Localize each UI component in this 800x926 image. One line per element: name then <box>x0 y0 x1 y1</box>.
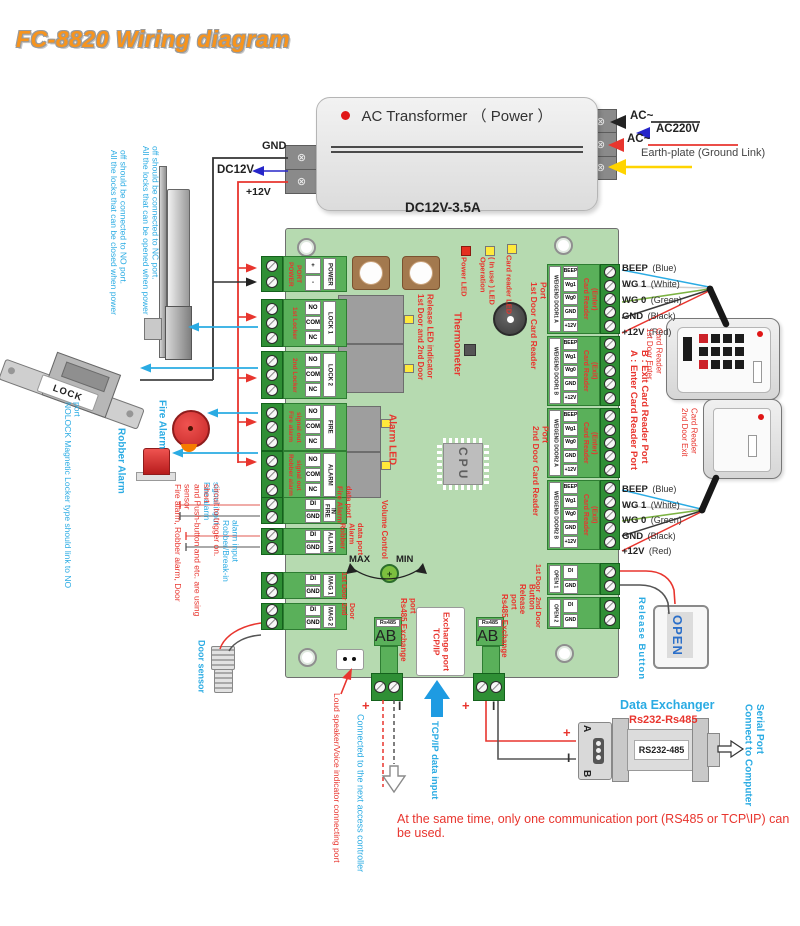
operation-led <box>485 246 495 256</box>
pin-label: GND <box>563 614 578 628</box>
wiring-diagram: FC-8820 Wiring diagram <box>0 0 800 926</box>
pin-label: COM <box>305 316 321 330</box>
card-reader-keypad <box>666 318 780 400</box>
pin-label: GND <box>305 542 321 554</box>
tcpip-port-label: TCP/IP Exchange port <box>431 612 451 671</box>
pin-label: DI <box>305 530 321 542</box>
rs485-port-label-left: Rs485 Exchange port <box>399 598 417 672</box>
relay-lock2 <box>338 344 404 393</box>
pin-label: NC <box>305 483 321 497</box>
exchanger-device-label: RS232-485 <box>634 740 689 760</box>
ac-transformer: AC Transformer （ Power ） <box>316 97 598 211</box>
pin-label: +12V <box>563 392 578 405</box>
pin-label: Wg1 <box>563 423 578 436</box>
pin-label: Wg0 <box>563 509 578 522</box>
exchanger-title: Data Exchanger <box>620 698 714 712</box>
rs485-block-left: Rs485 AB <box>374 617 402 646</box>
terminal-mag2: DIGND MAG 2 <box>261 603 347 630</box>
door-sensor-device <box>211 646 235 670</box>
terminal-open1: OPEN 1 DIGND <box>547 563 620 595</box>
note-one-port: At the same time, only one communication… <box>397 812 800 841</box>
power-led <box>461 246 471 256</box>
dc12v-label: DC12V <box>217 164 254 177</box>
terminal-open2: OPEN 2 DIGND <box>547 597 620 629</box>
legend-color: (Blue) <box>652 263 676 273</box>
mounting-hole <box>298 648 317 667</box>
gnd-label: GND <box>262 140 286 153</box>
pin-label: COM <box>305 368 321 382</box>
transformer-divider <box>331 146 583 153</box>
pin-label: NO <box>305 405 321 419</box>
note-loud-speaker: Loud speaker/Voice indicator connecting … <box>331 693 341 865</box>
terminal-fire-out: Fire alarm signal out NOCOMNC FIRE <box>261 403 347 451</box>
pin-label: BEEP <box>563 410 578 423</box>
reader2-device-label: 2nd Door Exit Card Reader <box>680 408 698 476</box>
pin-label: DI <box>563 599 578 613</box>
pin-label: DI <box>563 565 578 579</box>
open-button: OPEN <box>653 605 709 669</box>
screw-terminal-icon: ⊗ <box>286 146 317 170</box>
pin-label: + <box>305 258 321 274</box>
exchanger-a-label: A <box>581 725 592 732</box>
pin-label: GND <box>305 617 321 629</box>
pin-label: GND <box>305 586 321 598</box>
rs485-pins: AB <box>375 628 401 646</box>
note-next-controller: Connected to the next access controller <box>355 714 365 894</box>
cpu-label: CPU <box>456 447 470 481</box>
release-button-label: Release Button <box>635 597 646 685</box>
relay-lock1 <box>338 295 404 344</box>
pin-label: Wg1 <box>563 495 578 508</box>
rs485-stem-left <box>380 646 398 674</box>
pin-label: BEEP <box>563 338 578 351</box>
fire-alarm-bell <box>172 410 210 448</box>
exchanger-bar: I <box>567 752 570 766</box>
mounting-hole <box>297 238 316 257</box>
note-nc-port: All the locks that can be opened when po… <box>140 146 160 324</box>
card-reader-led <box>507 244 517 254</box>
pin-label: NC <box>305 331 321 345</box>
pin-label: B <box>488 628 499 646</box>
pin-label: GND <box>563 450 578 463</box>
exchanger-body: RS232-485 <box>627 729 694 771</box>
pin-label: NO <box>305 453 321 467</box>
pin-label: - <box>305 275 321 291</box>
terminal-lock2: 2nd Locker NOCOMNC LOCK 2 <box>261 351 347 399</box>
mounting-hole <box>554 236 573 255</box>
thermometer-component <box>464 344 476 356</box>
cpu-chip: CPU <box>437 438 489 490</box>
pin-label: +12V <box>563 536 578 549</box>
fire-alarm-label: Fire Alarm <box>156 400 168 454</box>
alarm-led-label: Alarm LED <box>386 414 398 494</box>
pin-label: A <box>477 628 488 646</box>
mag1-door-label: 1st Door <box>339 572 347 602</box>
mounting-hole <box>555 644 574 663</box>
right-port-bar: I <box>492 700 495 714</box>
ac-in-label-1: AC~ <box>630 110 653 123</box>
volume-knob: + <box>380 564 399 583</box>
open-button-label: OPEN <box>670 615 685 657</box>
pin-label: DI <box>305 499 321 511</box>
exchanger-plus: + <box>563 726 571 741</box>
fire-alarm-base <box>181 444 197 452</box>
volume-control-label: Volume Control <box>380 500 389 566</box>
power-led-label: Power LED <box>459 257 468 319</box>
rs485-header: Rs485 <box>376 619 400 627</box>
note-nolock: NOLOCK Magnetic Locker type should link … <box>62 402 82 592</box>
door1-release-led <box>404 315 414 324</box>
exchanger-input-block: A B <box>578 722 612 780</box>
note-tcpip-input: TCP/IP data input <box>428 721 439 809</box>
ac220-label: AC220V <box>656 123 699 136</box>
card-reader-plain <box>703 399 782 479</box>
pin-label: A <box>375 628 386 646</box>
sounder-component <box>402 256 440 290</box>
pin-label: NO <box>305 301 321 315</box>
pin-label: Wg1 <box>563 351 578 364</box>
terminal-lock1: 1st Locker NOCOMNC LOCK 1 <box>261 299 347 347</box>
page-title: FC-8820 Wiring diagram <box>16 26 290 52</box>
terminal-weigend-door2-a: WEIGEND DOOR2 A BEEPWg1Wg0GND+12V Card R… <box>547 408 620 478</box>
note-robber-input: Robber/Break-in alarm input <box>220 520 240 594</box>
p12v-label: +12V <box>246 186 271 198</box>
rs485-port-label-right: Rs485 Exchange port <box>500 594 518 672</box>
transformer-output-terminals: ⊗ ⊗ <box>285 145 318 194</box>
transformer-rating: DC12V-3.5A <box>405 200 481 216</box>
transformer-label: AC Transformer （ Power ） <box>317 108 597 125</box>
pin-label: BEEP <box>563 482 578 495</box>
terminal-weigend-door1-a: WEIGEND DOOR1 A BEEPWg1Wg0GND+12V Card R… <box>547 264 620 334</box>
thermometer-label: Thermometer <box>451 312 463 420</box>
pin-label: GND <box>563 306 578 319</box>
pin-label: Wg0 <box>563 293 578 306</box>
screw-terminal-icon: ⊗ <box>286 170 317 193</box>
pin-label: NC <box>305 435 321 449</box>
magnetic-lock-bar <box>167 189 190 311</box>
pin-label: COM <box>305 468 321 482</box>
open1-door-label: 1st Door <box>533 564 541 596</box>
door2-release-led <box>404 364 414 373</box>
release-led-label: 1st Door and 2nd Door Release LED indica… <box>416 294 434 394</box>
pin-label: DI <box>305 605 321 617</box>
pin-label: Wg0 <box>563 365 578 378</box>
terminal-weigend-door2-b: WEIGEND DOOR2 B BEEPWg1Wg0GND+12V Card R… <box>547 480 620 550</box>
pin-label: GND <box>305 511 321 523</box>
pin-label: GND <box>563 580 578 594</box>
pin-label: B <box>386 628 397 646</box>
left-port-bar: I <box>398 700 401 714</box>
open2-door-label: 2nd Door <box>533 597 541 629</box>
operation-led-label: Operation ( In use ) LED <box>478 257 495 345</box>
terminal-mag1: DIGND MAG 1 <box>261 572 347 599</box>
right-port-plus: + <box>462 699 470 714</box>
reader1-port-label: 1st Door Card Reader Port <box>528 282 548 384</box>
pin-label: Wg0 <box>563 437 578 450</box>
earth-label: Earth-plate (Ground Link) <box>641 147 765 160</box>
pin-label: NO <box>305 353 321 367</box>
pin-label: +12V <box>563 464 578 477</box>
magnetic-lock-body <box>165 306 192 360</box>
terminal-weigend-door1-b: WEIGEND DOOR1 B BEEPWg1Wg0GND+12V Card R… <box>547 336 620 406</box>
pin-label: NC <box>305 383 321 397</box>
reader1-device-label: 1st Door Enter Card Reader <box>645 328 663 400</box>
reader-led-dot <box>758 414 764 420</box>
wire-legend-1: BEEP (Blue) WG 1 (White) WG 0 (Green) GN… <box>622 258 682 338</box>
note-no-port: All the locks that can be closed when po… <box>108 150 128 328</box>
robber-alarm-label: Robber Alarm <box>115 428 127 506</box>
sounder-component <box>352 256 390 290</box>
mag2-door-label: 2nd Door <box>339 603 355 633</box>
rs485-screws-right <box>473 673 505 701</box>
tcpip-port: TCP/IP Exchange port <box>416 607 465 676</box>
pin-label: GND <box>563 522 578 535</box>
pin-label: BEEP <box>563 266 578 279</box>
reader-led-dot <box>757 331 763 337</box>
exchanger-subtitle: Rs232-Rs485 <box>629 714 698 727</box>
note-short-circuit: Fire alarm, Robber alarm, Door sensor an… <box>172 484 221 626</box>
exchanger-b-label: B <box>581 770 592 777</box>
speaker-connector <box>336 649 364 670</box>
pin-label: DI <box>305 574 321 586</box>
pin-label: COM <box>305 420 321 434</box>
rs485-screws-left <box>371 673 403 701</box>
robber-data-port-label: Robber Alarm data port <box>338 523 364 571</box>
reader2-port-label: 2nd Door Card Reader Port <box>530 426 550 528</box>
volume-min-label: MIN <box>396 555 413 566</box>
terminal-power: POWER PORT +- POWER <box>261 256 347 292</box>
ac-in-label-2: AC~ <box>627 133 650 146</box>
door-sensor-label: Door sensor <box>196 640 206 704</box>
connect-computer-note: Connect to Computer Serial Port <box>742 704 765 820</box>
rs485-stem-right <box>482 646 500 674</box>
rs485-header: Rs485 <box>478 619 502 627</box>
exchanger-dsub <box>707 733 720 767</box>
pin-label: Wg1 <box>563 279 578 292</box>
wire-legend-2: BEEP (Blue) WG 1 (White) WG 0 (Green) GN… <box>622 479 682 557</box>
pin-label: +12V <box>563 320 578 333</box>
card-reader-led-label: Card reader LED <box>504 255 513 337</box>
left-port-plus: + <box>362 699 370 714</box>
pin-label: GND <box>563 378 578 391</box>
door-sensor-device <box>214 669 233 693</box>
legend-pin: BEEP <box>622 263 648 274</box>
